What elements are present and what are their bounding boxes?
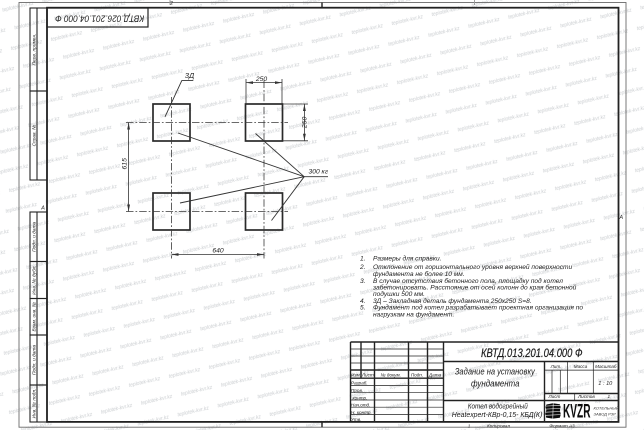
svg-text:Нач.отд.: Нач.отд.	[351, 403, 370, 408]
svg-text:Масса: Масса	[574, 364, 588, 369]
svg-text:Подп. и дата: Подп. и дата	[31, 345, 37, 375]
svg-text:Формат А3: Формат А3	[549, 424, 575, 429]
svg-text:3Д: 3Д	[185, 71, 194, 80]
svg-text:Пров.: Пров.	[351, 388, 363, 393]
svg-text:Н. контр.: Н. контр.	[351, 410, 372, 415]
svg-text:Инв. № подл.: Инв. № подл.	[31, 389, 37, 419]
svg-text:подушки 500 мм.: подушки 500 мм.	[373, 290, 425, 298]
svg-text:Размеры для справки.: Размеры для справки.	[373, 254, 442, 262]
svg-text:Инв. № дубл.: Инв. № дубл.	[31, 265, 37, 295]
svg-text:КВТД.013.201.04.000 Ф: КВТД.013.201.04.000 Ф	[481, 346, 583, 360]
svg-text:Масштаб: Масштаб	[595, 364, 617, 369]
svg-text:Котел водогрейный: Котел водогрейный	[468, 403, 528, 411]
svg-text:Утв.: Утв.	[351, 417, 361, 422]
svg-text:Копировал: Копировал	[487, 424, 510, 429]
svg-text:Взам. инв. №: Взам. инв. №	[31, 302, 37, 332]
svg-text:КВТД.026.201.04.000 Ф: КВТД.026.201.04.000 Ф	[55, 13, 144, 23]
svg-text:300 кг: 300 кг	[309, 168, 329, 175]
svg-text:1 : 10: 1 : 10	[598, 381, 613, 387]
svg-text:Heatexpert-КВр-0,15- КБД(К): Heatexpert-КВр-0,15- КБД(К)	[452, 412, 543, 419]
svg-text:640: 640	[212, 248, 224, 255]
svg-text:Фундамент под котел разрабатыв: Фундамент под котел разрабатывает проект…	[373, 303, 583, 311]
svg-text:Подп. и дата: Подп. и дата	[31, 221, 37, 251]
svg-text:Лист: Лист	[361, 372, 374, 377]
svg-text:фундамента не более 10 мм.: фундамента не более 10 мм.	[373, 270, 465, 278]
svg-text:фундамента: фундамента	[471, 379, 520, 389]
svg-text:1: 1	[608, 394, 611, 399]
svg-text:Отклонение от горизонтального: Отклонение от горизонтального уровня вер…	[373, 263, 572, 271]
svg-text:250: 250	[301, 117, 308, 130]
svg-text:Листов: Листов	[577, 394, 595, 399]
svg-text:Разраб.: Разраб.	[351, 381, 368, 386]
svg-text:KVZR: KVZR	[563, 402, 591, 423]
svg-text:Дата: Дата	[428, 372, 442, 377]
svg-text:ЗАВОД РЗР: ЗАВОД РЗР	[594, 412, 617, 417]
svg-text:А: А	[40, 206, 45, 212]
svg-text:контр.: контр.	[353, 395, 368, 400]
svg-text:250: 250	[255, 76, 268, 83]
svg-text:Подп.: Подп.	[411, 372, 423, 377]
svg-text:КОТЕЛЬНЫЙ: КОТЕЛЬНЫЙ	[594, 405, 619, 410]
svg-text:Перв. примен.: Перв. примен.	[31, 34, 37, 66]
svg-text:3.: 3.	[360, 278, 366, 285]
svg-text:1.: 1.	[360, 255, 366, 262]
svg-text:Лист: Лист	[548, 394, 561, 399]
svg-text:2.: 2.	[359, 264, 366, 271]
svg-text:Задание на установку: Задание на установку	[455, 367, 536, 377]
svg-text:№ докум.: № докум.	[381, 372, 401, 377]
svg-text:Справ. №: Справ. №	[31, 125, 37, 147]
svg-text:нагрузкам на фундамент.: нагрузкам на фундамент.	[373, 311, 454, 319]
svg-text:615: 615	[122, 158, 129, 170]
svg-text:Изм.: Изм.	[351, 372, 361, 377]
svg-text:5.: 5.	[360, 304, 366, 311]
svg-text:1: 1	[468, 424, 471, 429]
svg-text:Лит.: Лит.	[550, 364, 562, 369]
